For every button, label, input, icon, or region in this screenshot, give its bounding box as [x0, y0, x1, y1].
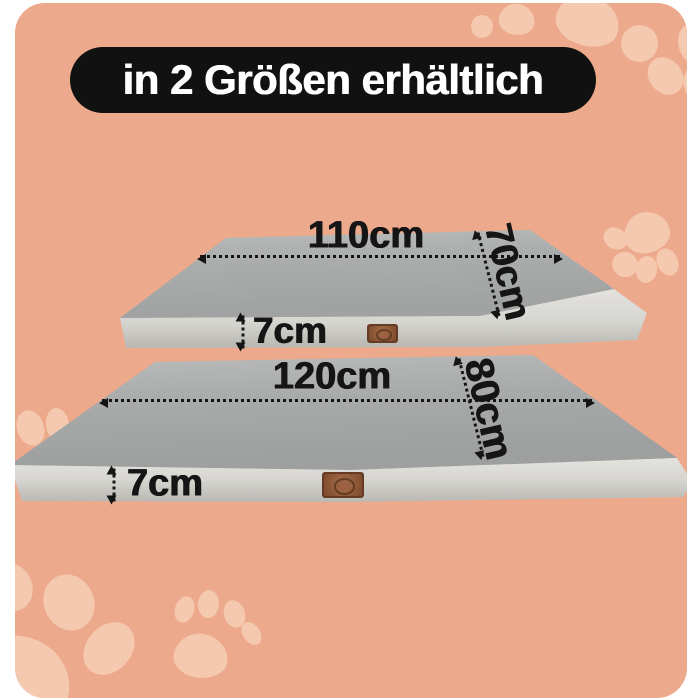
brand-tag: [367, 324, 398, 343]
product-card-background: in 2 Größen erhältlich 110cm 70cm 7cm 12…: [15, 3, 687, 698]
width-dimension-label: 110cm: [308, 215, 424, 258]
paw-pad: [15, 555, 41, 620]
height-dimension-label: 7cm: [253, 310, 327, 352]
width-dimension-label: 120cm: [273, 356, 391, 399]
paw-pad: [35, 566, 104, 638]
paw-pad: [496, 3, 539, 39]
brand-tag: [322, 472, 364, 498]
width-dimension-arrow: [102, 399, 592, 402]
paw-pad: [15, 628, 77, 698]
paw-pad: [471, 15, 493, 38]
scene-canvas: in 2 Größen erhältlich 110cm 70cm 7cm 12…: [15, 3, 687, 698]
availability-badge-label: in 2 Größen erhältlich: [123, 56, 544, 104]
availability-badge: in 2 Größen erhältlich: [70, 47, 596, 113]
paw-pad: [171, 594, 197, 626]
height-dimension-arrow: [113, 469, 116, 502]
paw-pad: [170, 629, 232, 683]
height-dimension-arrow: [242, 316, 245, 349]
height-dimension-label: 7cm: [127, 463, 203, 506]
paw-pad: [197, 589, 220, 618]
